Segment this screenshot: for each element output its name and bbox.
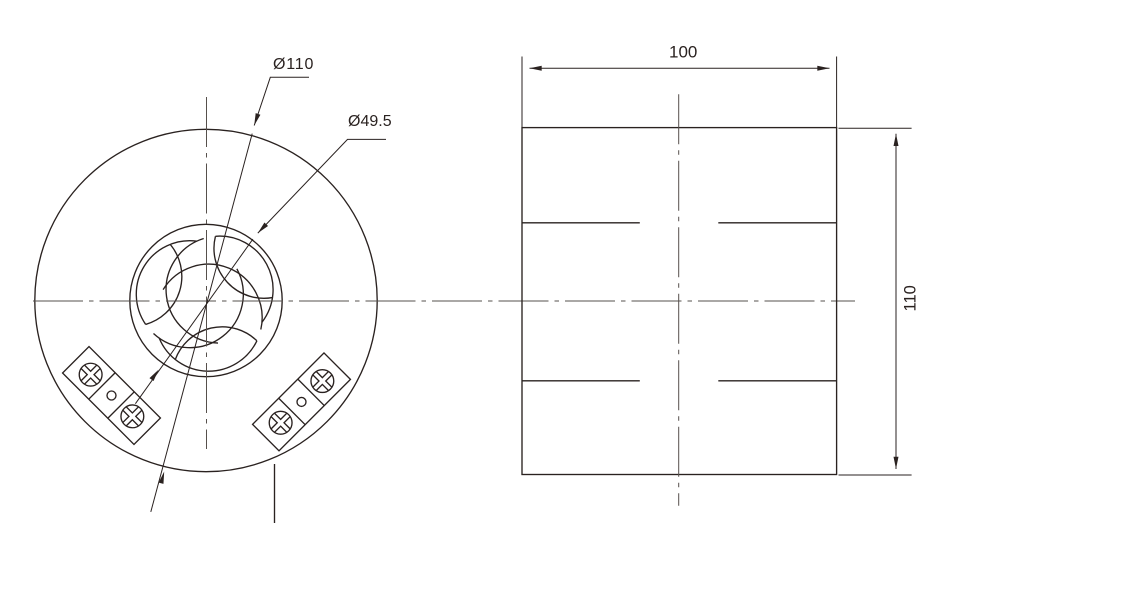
svg-text:Ø49.5: Ø49.5	[348, 113, 392, 130]
svg-text:Ø110: Ø110	[273, 56, 314, 73]
svg-text:110: 110	[901, 285, 919, 311]
svg-text:100: 100	[669, 43, 697, 62]
